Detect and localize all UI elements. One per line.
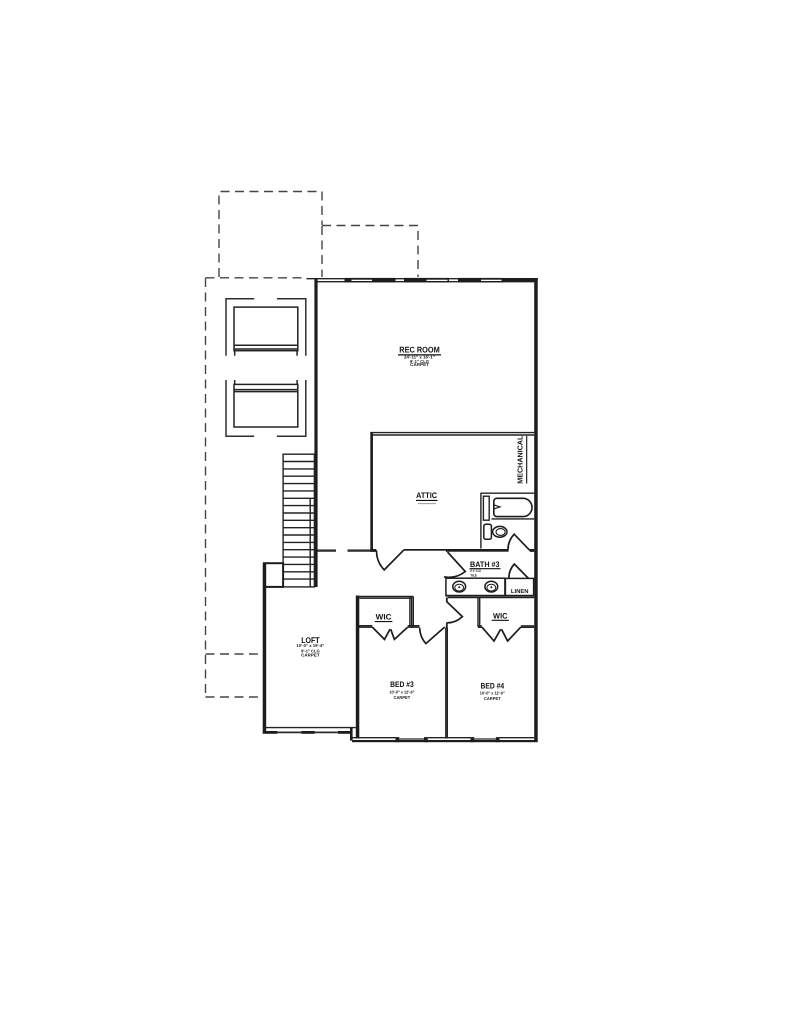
svg-text:9'-0" CLG: 9'-0" CLG	[470, 569, 481, 573]
svg-text:CARPET: CARPET	[301, 652, 320, 657]
svg-text:LINEN: LINEN	[511, 589, 529, 595]
svg-text:CARPET: CARPET	[410, 362, 430, 367]
svg-text:TILE: TILE	[470, 574, 477, 578]
svg-text:MECHANICAL: MECHANICAL	[516, 435, 525, 484]
svg-text:10'-0" x 12'-0": 10'-0" x 12'-0"	[480, 690, 505, 695]
svg-text:CARPET: CARPET	[484, 696, 501, 701]
svg-text:10'-0" x 19'-4": 10'-0" x 19'-4"	[296, 643, 324, 648]
svg-text:WIC: WIC	[493, 611, 508, 620]
svg-text:CARPET: CARPET	[394, 695, 411, 700]
svg-text:ATTIC: ATTIC	[416, 491, 437, 500]
svg-text:BED #3: BED #3	[390, 680, 414, 689]
svg-text:BED #4: BED #4	[481, 681, 505, 690]
svg-text:BATH #3: BATH #3	[470, 560, 500, 569]
svg-text:10'-0" x 12'-6": 10'-0" x 12'-6"	[389, 690, 414, 695]
svg-text:WIC: WIC	[376, 613, 392, 622]
svg-text:REC ROOM: REC ROOM	[399, 345, 440, 355]
